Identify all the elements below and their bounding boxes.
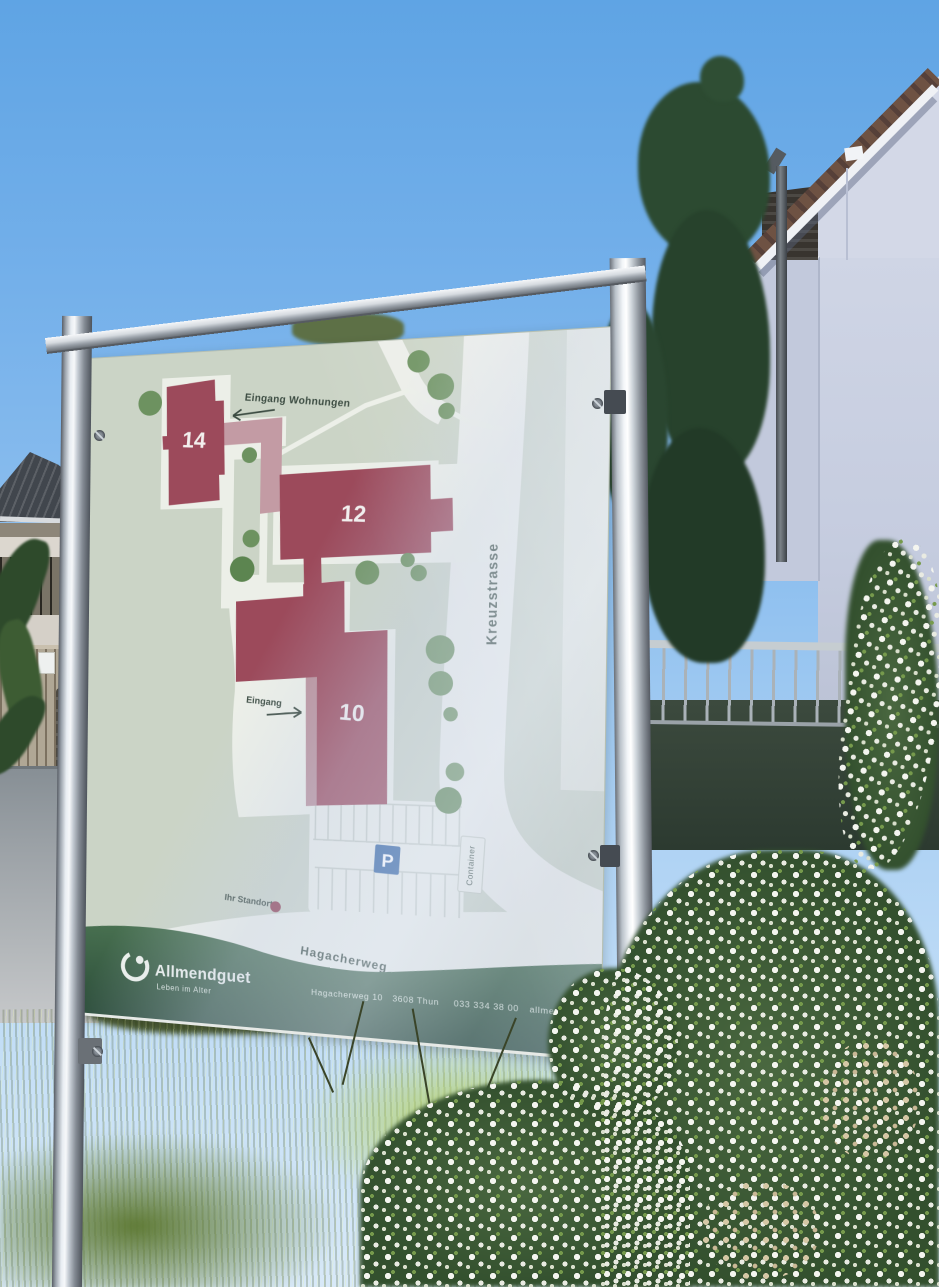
- site-map: 14 12 10 Eingang Wohnungen Eingang Kreuz…: [79, 327, 611, 1058]
- kreuzstrasse-label: Kreuzstrasse: [483, 543, 501, 646]
- small-white-sign: [38, 652, 55, 674]
- building-10-label: 10: [338, 699, 365, 727]
- dried-flower-patch: [700, 1180, 820, 1280]
- downpipe: [776, 166, 787, 562]
- screw-icon: [592, 398, 603, 409]
- walkway-link: [260, 440, 282, 514]
- building-link: [303, 556, 322, 587]
- screw-icon: [92, 1046, 103, 1057]
- lawn-shadow-patch: [0, 1130, 340, 1287]
- screw-icon: [588, 850, 599, 861]
- building-12-wing: [429, 498, 453, 532]
- parking-sign-label: P: [381, 850, 394, 872]
- building-12-label: 12: [340, 500, 367, 527]
- site-map-sign-board: 14 12 10 Eingang Wohnungen Eingang Kreuz…: [78, 326, 612, 1061]
- pine-tree-top: [700, 56, 744, 102]
- dried-flower-patch: [820, 1040, 920, 1160]
- building-10-west-wing: [235, 595, 320, 683]
- photo-of-site-map-sign: 14 12 10 Eingang Wohnungen Eingang Kreuz…: [0, 0, 939, 1287]
- wall-seam: [846, 168, 848, 260]
- screw-icon: [94, 430, 105, 441]
- mounting-clamp: [600, 845, 620, 867]
- building-14-label: 14: [181, 427, 207, 453]
- mounting-clamp: [604, 390, 626, 414]
- wall-vent: [844, 146, 864, 161]
- flower-cluster: [548, 968, 678, 1118]
